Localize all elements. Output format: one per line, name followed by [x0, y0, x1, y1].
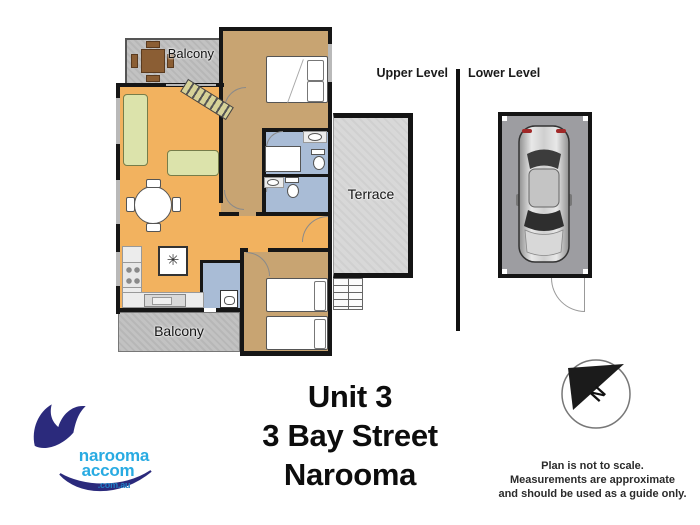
star-symbol-icon: ✳	[167, 252, 180, 269]
toilet-bowl	[287, 184, 299, 198]
wall	[219, 27, 332, 31]
wall	[262, 128, 266, 216]
garage-door-arc	[551, 278, 585, 312]
dining-table	[134, 186, 172, 224]
stove	[122, 262, 142, 288]
toilet-cistern	[311, 149, 325, 155]
dining-chair	[172, 197, 181, 212]
pillow	[314, 281, 326, 311]
car-icon	[516, 124, 572, 264]
dining-chair	[126, 197, 135, 212]
disclaimer-line2: Measurements are approximate	[470, 473, 700, 487]
wall	[240, 351, 332, 356]
terrace-label: Terrace	[334, 186, 408, 202]
pillow	[314, 319, 326, 349]
address-block: Unit 3 3 Bay Street Narooma	[215, 377, 485, 494]
garage-post	[502, 269, 507, 274]
balcony-top-label: Balcony	[168, 46, 214, 61]
garage-post	[583, 116, 588, 121]
outdoor-table	[141, 49, 165, 73]
kitchen-symbol-box: ✳	[158, 246, 188, 276]
wall	[219, 212, 239, 216]
outdoor-chair	[146, 75, 160, 82]
garage-post	[583, 269, 588, 274]
level-divider	[456, 69, 460, 331]
balcony-bottom-label: Balcony	[119, 323, 239, 339]
shower	[265, 146, 301, 172]
kitchen-sink-basin	[152, 297, 172, 305]
garage-post	[502, 116, 507, 121]
balcony-bottom: Balcony	[118, 312, 240, 352]
wall	[268, 248, 332, 252]
compass-icon: N	[558, 355, 634, 431]
outdoor-chair	[146, 41, 160, 48]
pillow	[307, 81, 324, 102]
pillow	[307, 60, 324, 81]
floorplan-page: Balcony Balcony	[0, 0, 700, 525]
washing-machine-drum	[224, 296, 235, 305]
wall	[256, 212, 332, 216]
disclaimer-line3: and should be used as a guide only.	[470, 487, 700, 501]
wall	[240, 248, 244, 355]
disclaimer: Plan is not to scale. Measurements are a…	[470, 459, 700, 501]
window	[116, 98, 120, 144]
upper-level-label: Upper Level	[330, 66, 448, 80]
address-line2: 3 Bay Street	[215, 416, 485, 455]
wall	[116, 308, 244, 312]
sofa	[167, 150, 219, 176]
dining-chair	[146, 179, 161, 188]
logo-name-bottom: accom	[49, 463, 167, 479]
sofa	[123, 94, 148, 166]
address-line3: Narooma	[215, 455, 485, 494]
basin	[308, 133, 322, 141]
toilet-bowl	[313, 156, 325, 170]
disclaimer-line1: Plan is not to scale.	[470, 459, 700, 473]
lower-level-label: Lower Level	[468, 66, 540, 80]
stairs	[333, 278, 363, 310]
logo-domain: .com.au	[55, 480, 173, 490]
address-line1: Unit 3	[215, 377, 485, 416]
wall	[200, 260, 242, 263]
dining-chair	[146, 223, 161, 232]
whale-tail-icon	[31, 402, 97, 452]
toilet-cistern	[285, 177, 299, 183]
balcony-top: Balcony	[125, 38, 221, 85]
door-gap	[204, 308, 216, 312]
garage	[498, 112, 592, 278]
basin	[267, 179, 279, 186]
outdoor-chair	[131, 54, 138, 68]
narooma-accom-logo: narooma accom .com.au	[25, 402, 175, 512]
window	[116, 252, 120, 286]
window	[116, 180, 120, 224]
terrace: Terrace	[333, 113, 413, 278]
